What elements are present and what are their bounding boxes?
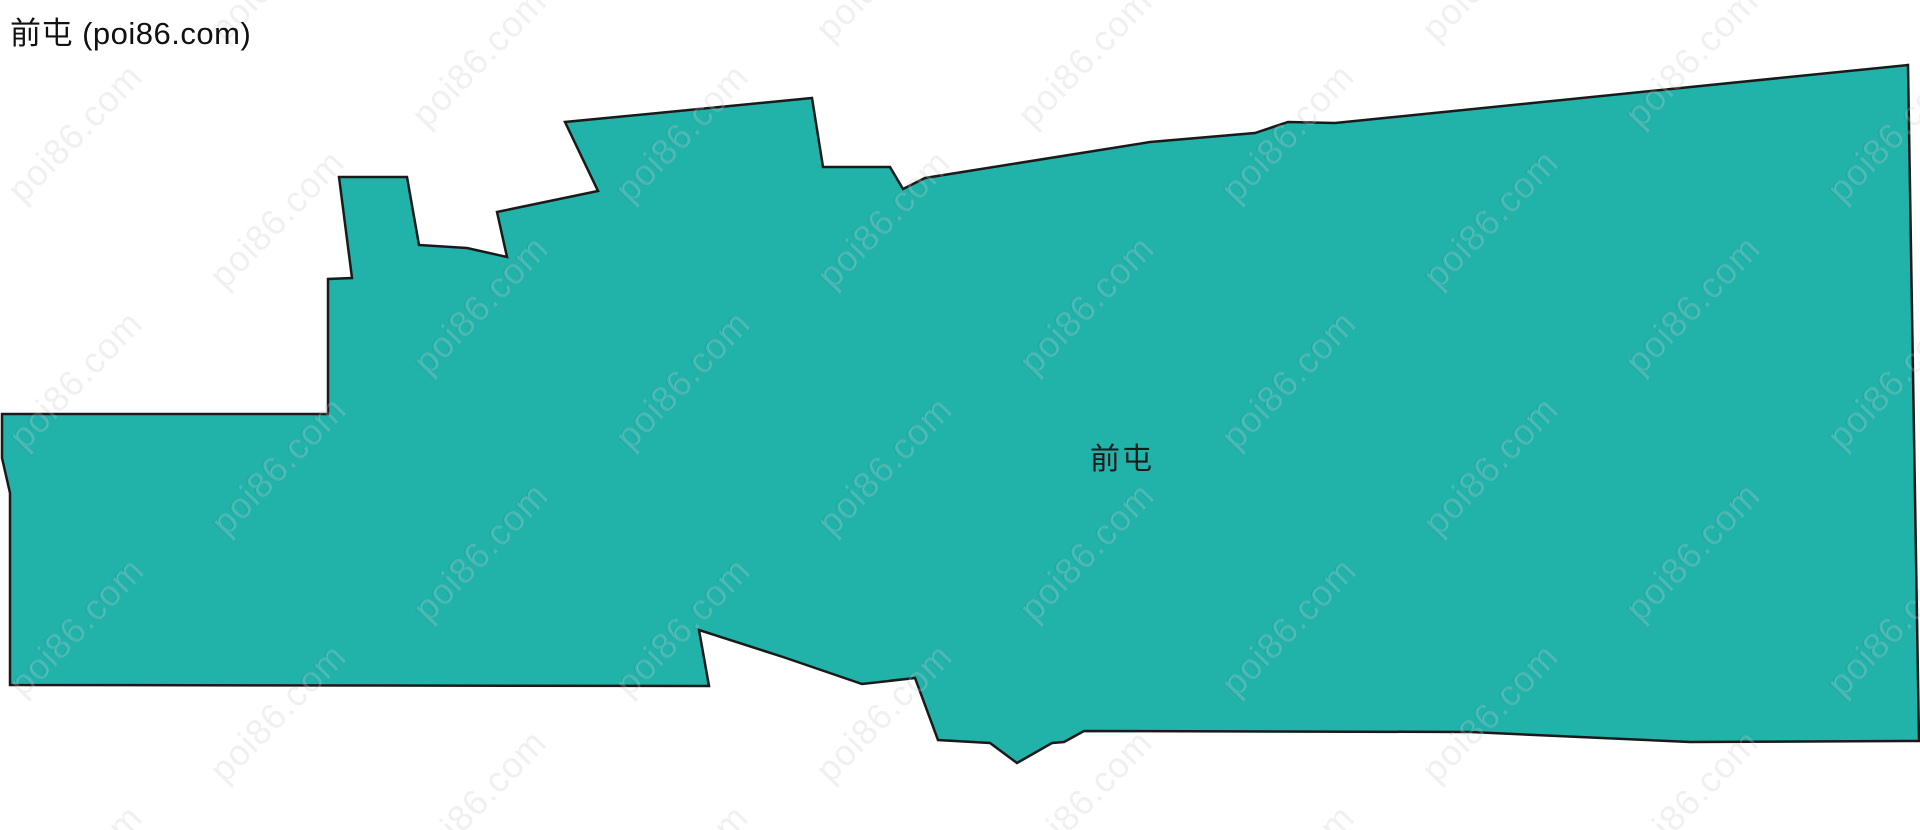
page-title: 前屯 (poi86.com) xyxy=(10,8,251,53)
map-canvas: 前屯 (poi86.com) 前屯 poi86.compoi86.compoi8… xyxy=(0,0,1920,830)
region-map xyxy=(0,0,1920,830)
region-polygon xyxy=(2,65,1919,763)
region-label: 前屯 xyxy=(1090,434,1154,478)
